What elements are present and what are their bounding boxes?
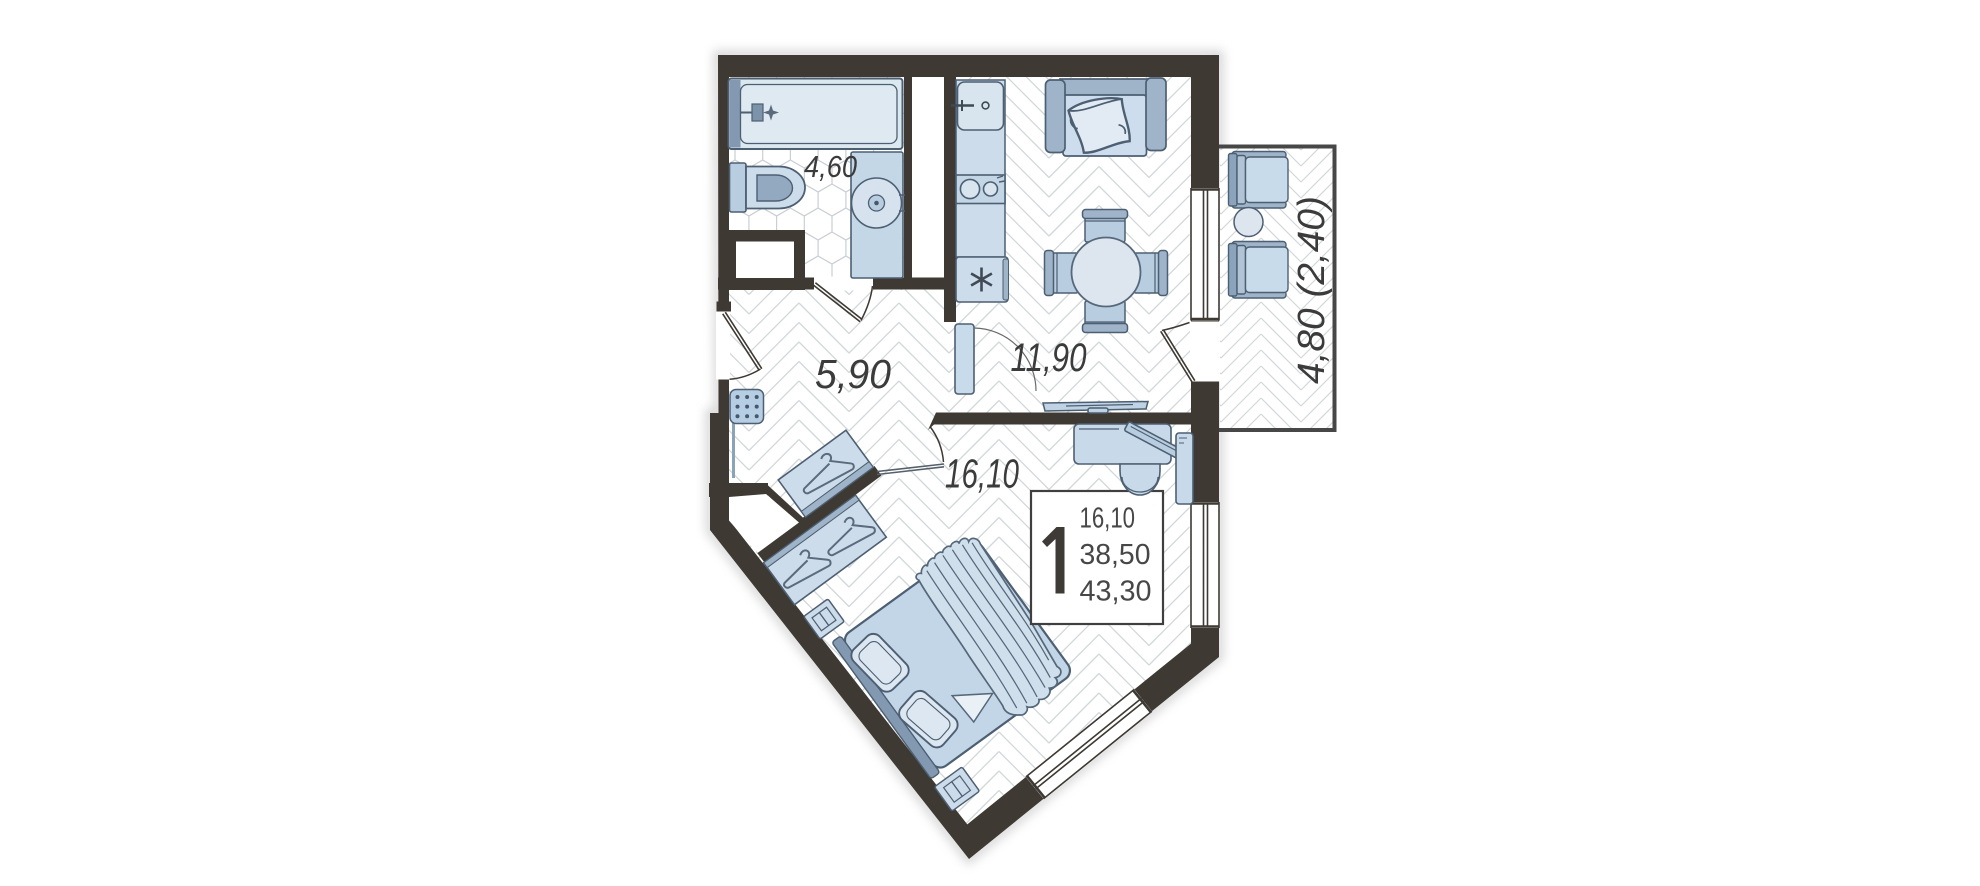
svg-text:38,50: 38,50 <box>1080 539 1151 571</box>
svg-text:11,90: 11,90 <box>1011 336 1087 380</box>
svg-text:4,60: 4,60 <box>804 149 857 184</box>
svg-text:43,30: 43,30 <box>1080 576 1152 608</box>
svg-text:16,10: 16,10 <box>1080 503 1136 535</box>
svg-text:5,90: 5,90 <box>815 351 891 397</box>
svg-text:4,80 (2,40): 4,80 (2,40) <box>1291 196 1333 384</box>
svg-text:16,10: 16,10 <box>945 451 1019 497</box>
